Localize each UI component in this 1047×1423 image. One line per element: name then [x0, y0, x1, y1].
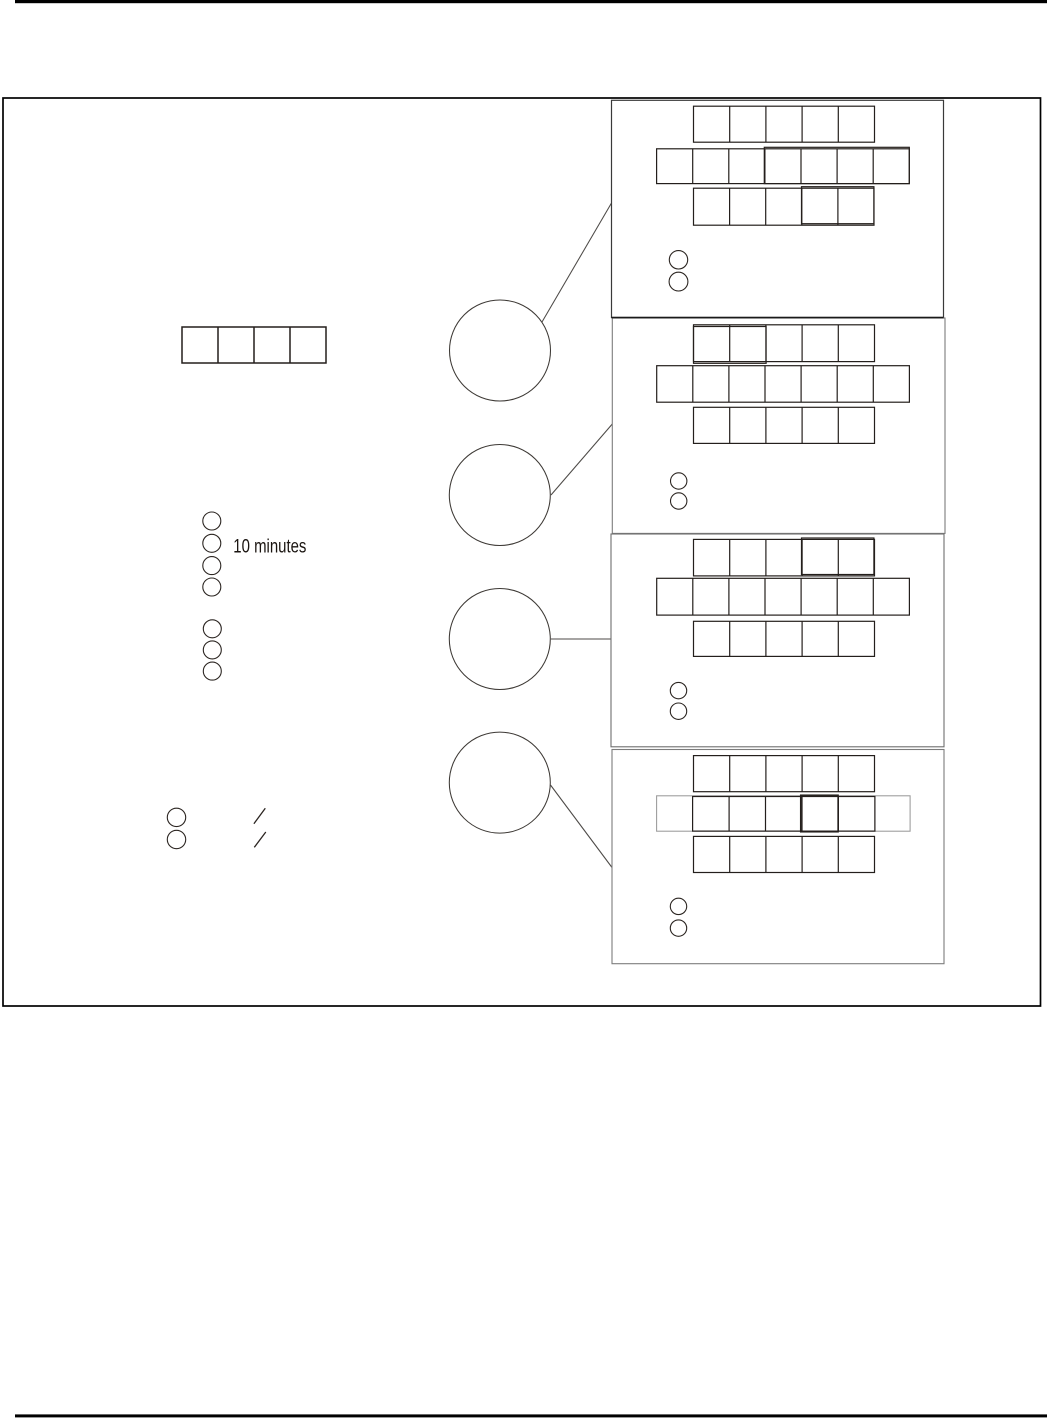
svg-text:10 minutes: 10 minutes	[233, 534, 306, 557]
